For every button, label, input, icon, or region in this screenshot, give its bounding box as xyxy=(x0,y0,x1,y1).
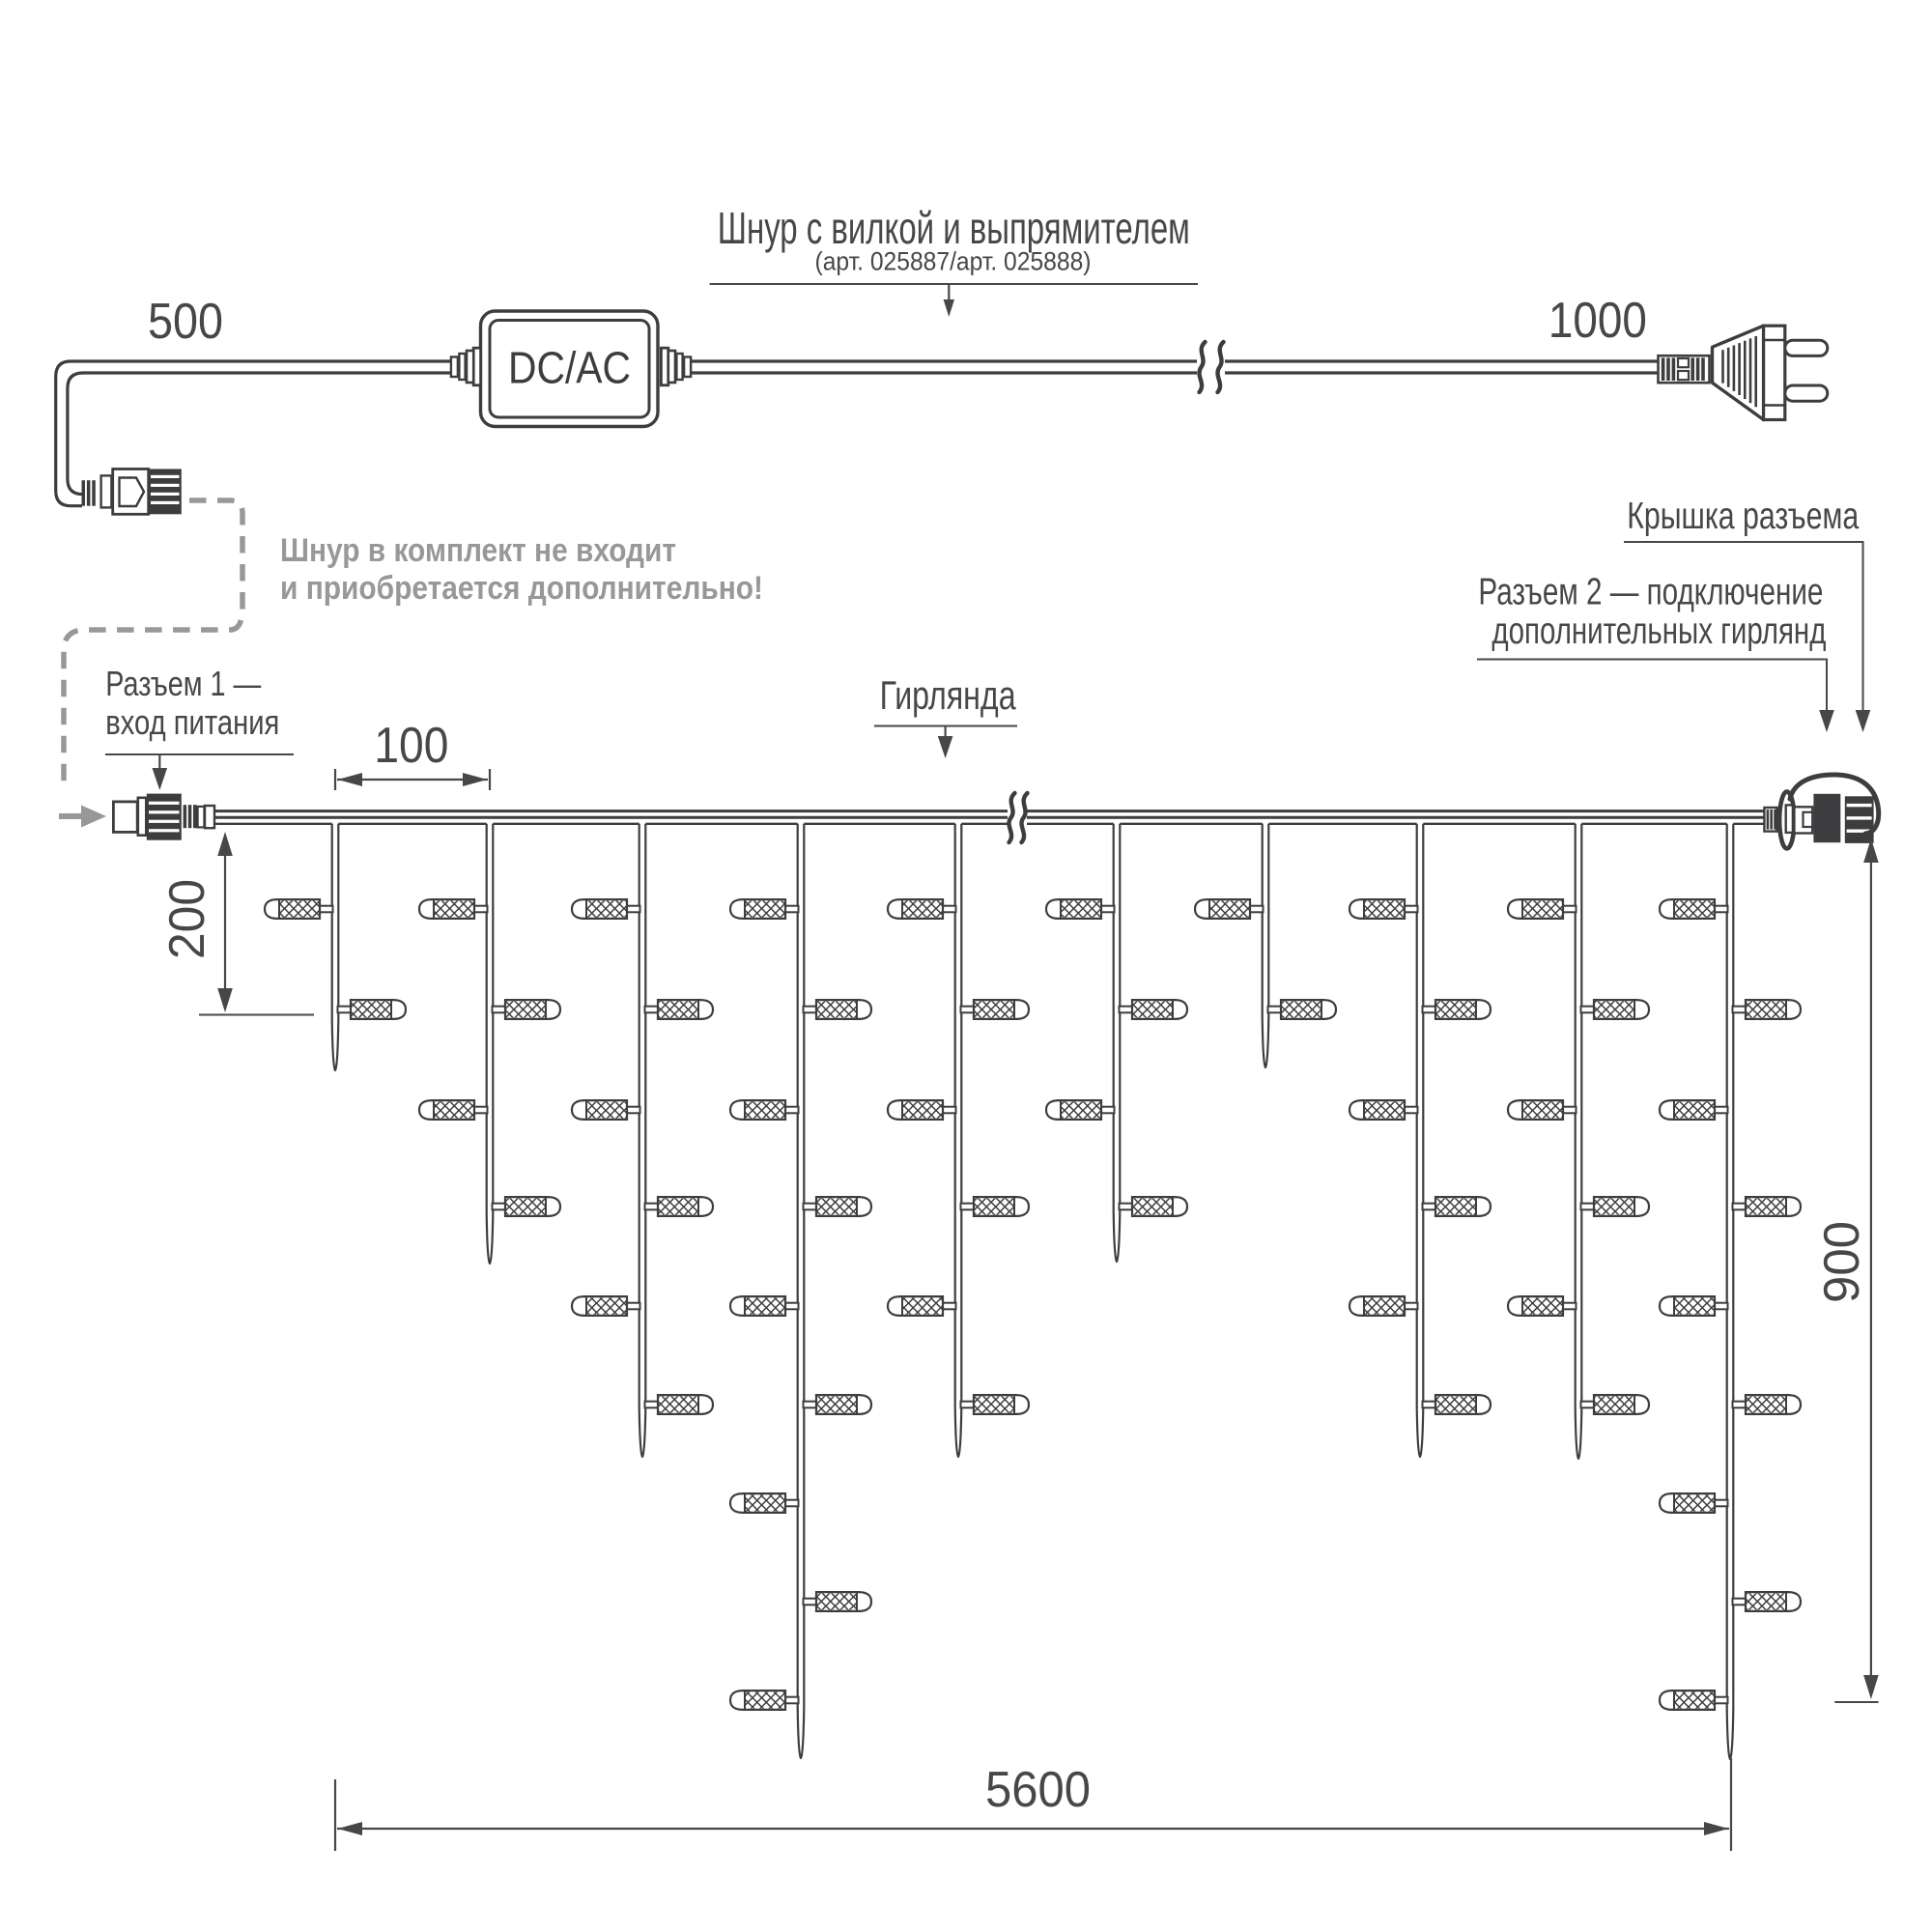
svg-text:100: 100 xyxy=(374,718,448,774)
svg-text:500: 500 xyxy=(148,294,223,350)
svg-text:Шнур в комплект не входит: Шнур в комплект не входит xyxy=(280,532,676,569)
svg-text:вход питания: вход питания xyxy=(105,702,279,742)
svg-text:DC/AC: DC/AC xyxy=(508,343,631,393)
svg-text:и приобретается дополнительно!: и приобретается дополнительно! xyxy=(280,570,763,607)
svg-text:Гирлянда: Гирлянда xyxy=(880,672,1016,718)
svg-text:200: 200 xyxy=(159,879,215,959)
svg-text:дополнительных гирлянд: дополнительных гирлянд xyxy=(1492,611,1826,652)
svg-text:Разъем 2 — подключение: Разъем 2 — подключение xyxy=(1478,572,1823,613)
svg-text:5600: 5600 xyxy=(985,1762,1091,1818)
svg-text:Шнур с вилкой и выпрямителем: Шнур с вилкой и выпрямителем xyxy=(718,203,1190,253)
svg-text:900: 900 xyxy=(1814,1221,1870,1303)
svg-text:Крышка разъема: Крышка разъема xyxy=(1627,496,1859,537)
svg-text:1000: 1000 xyxy=(1548,293,1647,349)
svg-text:(арт. 025887/арт. 025888): (арт. 025887/арт. 025888) xyxy=(815,247,1092,276)
svg-text:Разъем 1 —: Разъем 1 — xyxy=(105,664,261,703)
